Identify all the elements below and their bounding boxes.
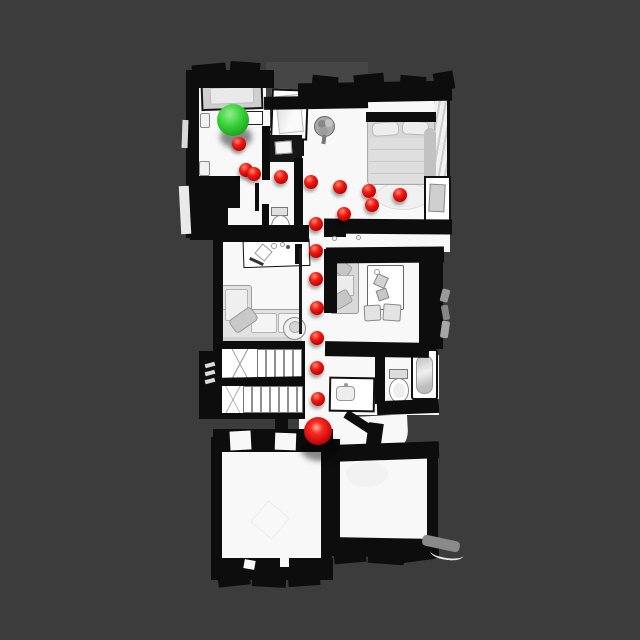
wall-segment: [252, 574, 287, 588]
blanket-fold: [424, 128, 436, 181]
stool: [364, 305, 382, 322]
desk-cup: [271, 243, 277, 249]
path-waypoint-14: [310, 331, 324, 345]
door-hinge: [332, 236, 337, 241]
desk-cup: [280, 242, 285, 247]
start-sphere: [304, 417, 332, 445]
goal-sphere: [217, 104, 249, 136]
stair-treads-lower: [243, 386, 303, 413]
shelf-item: [275, 140, 293, 154]
bathtub-basin: [416, 355, 433, 394]
sink: [336, 386, 355, 401]
wall-segment: [433, 70, 456, 91]
path-waypoint-0: [232, 137, 246, 151]
wall-segment: [287, 569, 320, 587]
headboard: [366, 112, 436, 122]
bed-single-mattress: [210, 86, 255, 105]
wall-segment: [262, 126, 270, 180]
path-waypoint-4: [304, 175, 318, 189]
wall-segment: [399, 75, 426, 91]
floorplan-scene[interactable]: [0, 0, 640, 640]
doorway-gap: [275, 433, 297, 451]
path-waypoint-2: [247, 167, 261, 181]
wall-segment: [311, 75, 338, 92]
curtain: [434, 94, 450, 184]
path-waypoint-10: [309, 217, 323, 231]
wall-segment: [213, 234, 223, 356]
path-waypoint-6: [362, 184, 376, 198]
doorway-gap: [243, 559, 255, 570]
wall-segment: [353, 73, 384, 92]
path-waypoint-15: [310, 361, 324, 375]
path-waypoint-5: [333, 180, 347, 194]
wall-debris: [182, 120, 189, 148]
desk-object: [286, 245, 290, 249]
door-jamb: [255, 183, 259, 211]
path-waypoint-9: [337, 207, 351, 221]
wall-segment: [211, 437, 222, 573]
path-waypoint-3: [274, 170, 288, 184]
toilet-seat: [393, 383, 405, 398]
path-waypoint-16: [311, 392, 325, 406]
stool: [382, 303, 401, 321]
plant-leaf: [319, 127, 328, 135]
doorway-gap: [230, 430, 252, 450]
light-switch: [199, 161, 210, 176]
faucet: [344, 383, 348, 387]
wall-segment: [215, 225, 309, 242]
wall-segment: [324, 249, 337, 313]
wall-segment: [375, 355, 385, 404]
path-waypoint-8: [365, 198, 379, 212]
path-waypoint-7: [393, 188, 407, 202]
table-object: [374, 269, 380, 275]
wall-segment: [377, 399, 439, 415]
wall-segment: [186, 70, 274, 88]
stair-landing: [222, 386, 244, 413]
plant-leaf: [325, 119, 333, 127]
path-waypoint-13: [310, 301, 324, 315]
light-switch: [200, 113, 210, 128]
path-waypoint-12: [309, 272, 323, 286]
closet-item: [428, 184, 445, 213]
wall-segment: [299, 248, 302, 334]
wall-segment: [335, 441, 440, 462]
stair-treads-upper: [257, 349, 302, 378]
door-hinge: [356, 235, 361, 240]
path-waypoint-11: [309, 244, 323, 258]
stair-landing: [222, 349, 258, 378]
pillow: [372, 121, 400, 137]
floor-texture: [346, 461, 388, 487]
doorway-gap: [280, 558, 289, 567]
wall-segment: [333, 549, 366, 565]
